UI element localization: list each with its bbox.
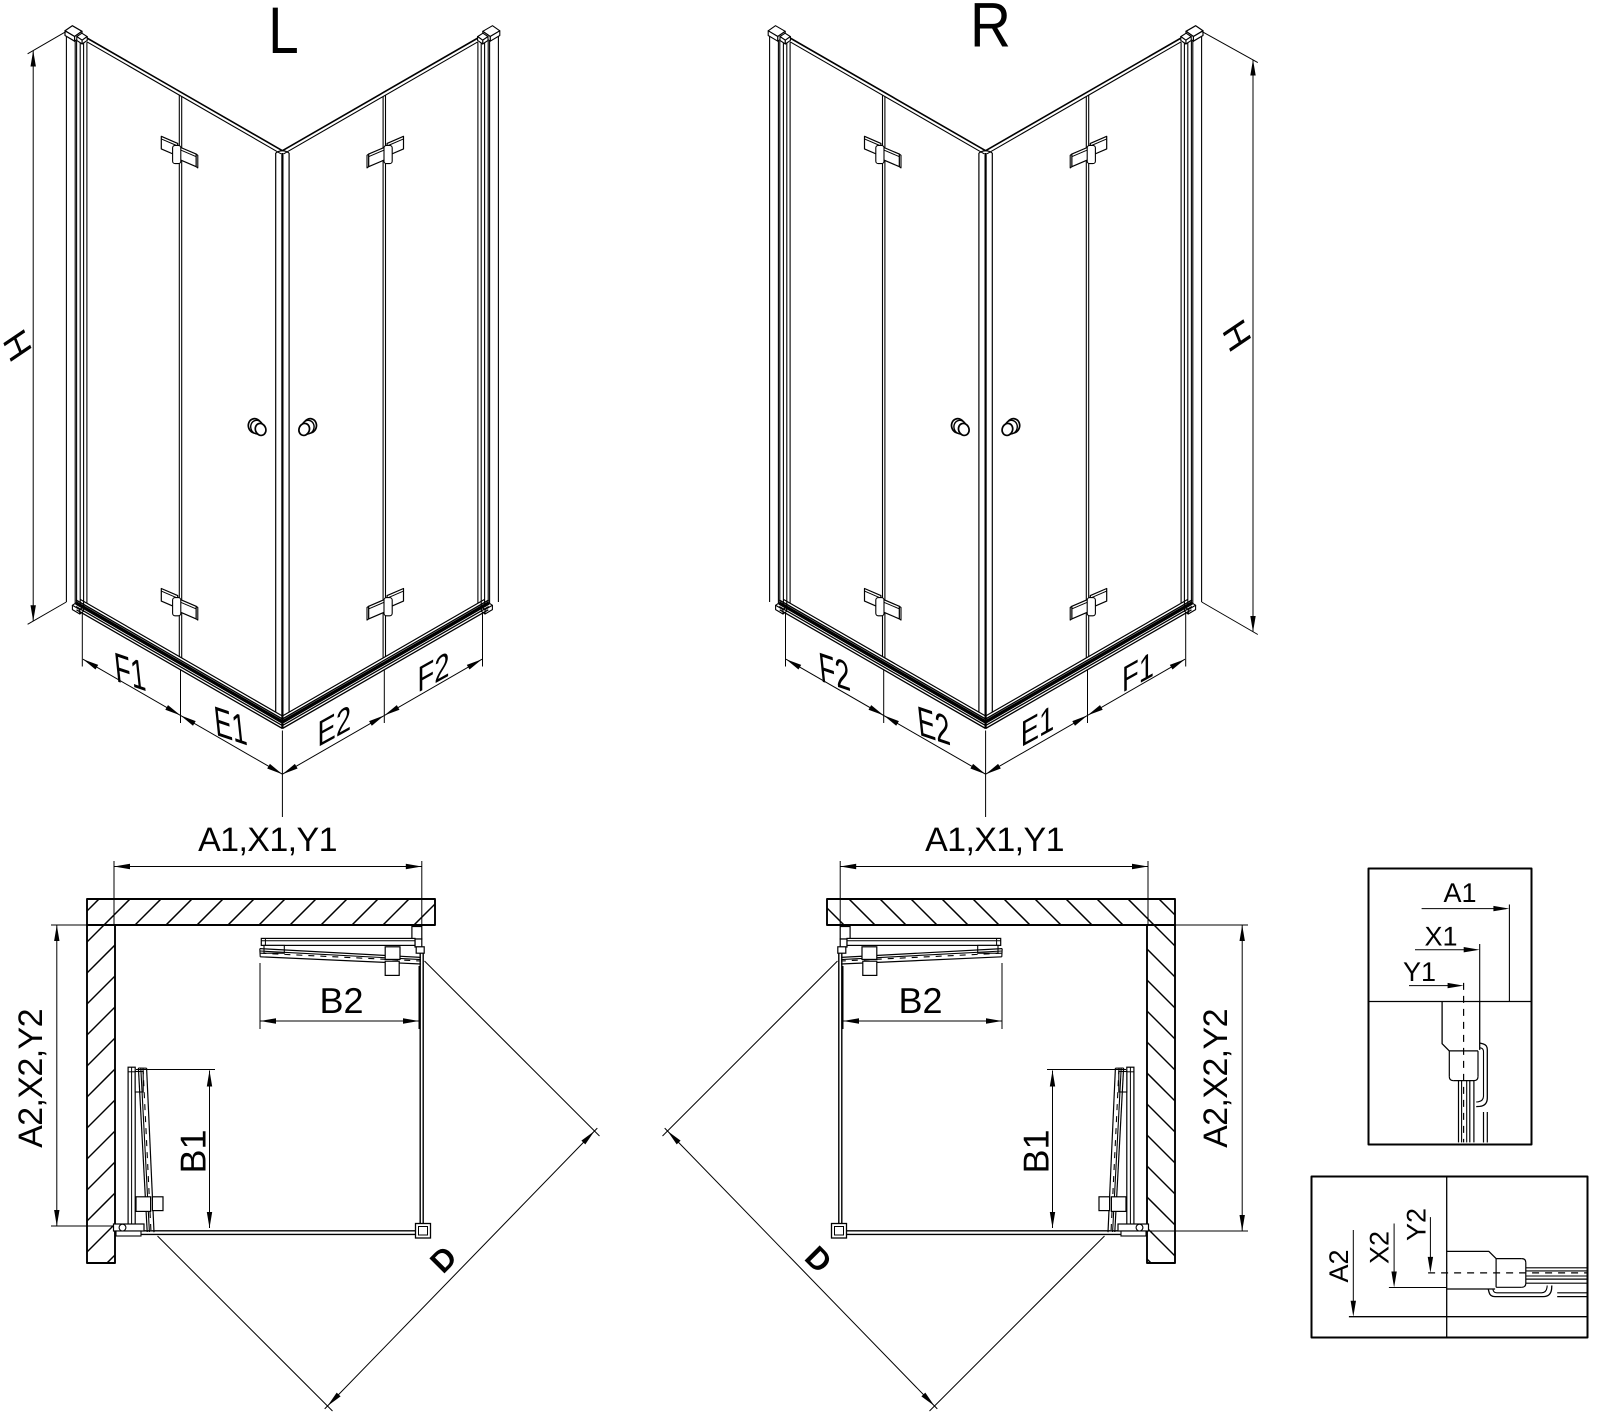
svg-text:A1,X1,Y1: A1,X1,Y1 (925, 821, 1064, 859)
svg-text:Y1: Y1 (1403, 957, 1436, 987)
svg-text:B1: B1 (1016, 1129, 1057, 1173)
svg-text:B2: B2 (319, 980, 363, 1021)
svg-text:B1: B1 (173, 1129, 214, 1173)
svg-text:X2: X2 (1365, 1231, 1395, 1264)
svg-text:B2: B2 (898, 980, 942, 1021)
svg-text:A1: A1 (1443, 878, 1476, 908)
svg-text:A2: A2 (1324, 1249, 1354, 1282)
svg-text:X1: X1 (1424, 922, 1457, 952)
svg-text:A2,X2,Y2: A2,X2,Y2 (1197, 1009, 1235, 1148)
svg-text:R: R (970, 0, 1011, 61)
svg-text:A2,X2,Y2: A2,X2,Y2 (12, 1009, 50, 1148)
svg-text:A1,X1,Y1: A1,X1,Y1 (198, 821, 337, 859)
svg-text:Y2: Y2 (1402, 1208, 1432, 1241)
svg-text:L: L (268, 0, 298, 67)
